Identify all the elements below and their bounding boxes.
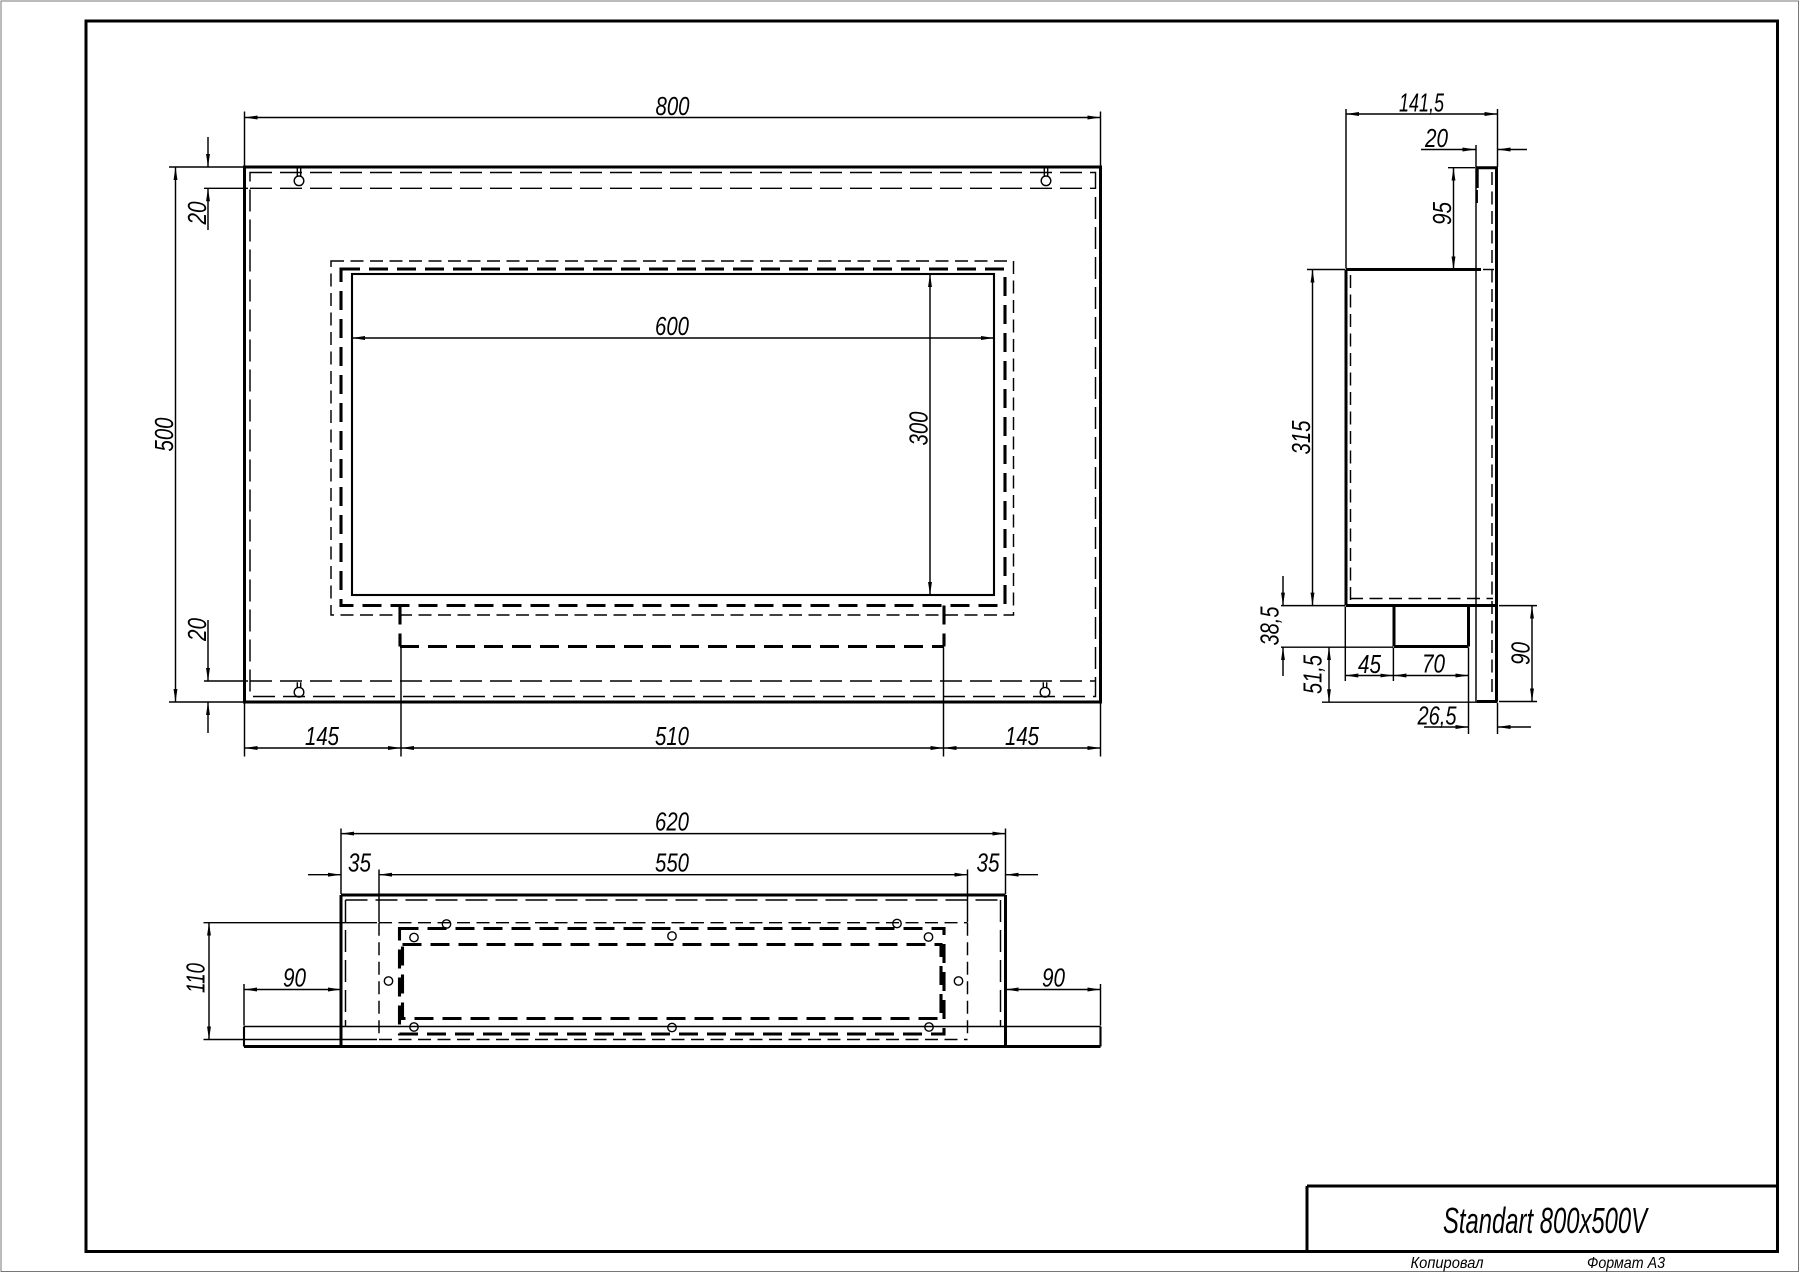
svg-text:35: 35: [348, 848, 371, 878]
svg-text:38,5: 38,5: [1255, 606, 1285, 645]
svg-text:26,5: 26,5: [1417, 701, 1457, 731]
svg-text:800: 800: [656, 91, 690, 121]
svg-text:20: 20: [182, 618, 212, 642]
svg-text:620: 620: [655, 807, 689, 837]
svg-text:90: 90: [1506, 642, 1536, 665]
svg-text:45: 45: [1358, 649, 1381, 679]
svg-text:510: 510: [655, 721, 689, 751]
svg-text:141,5: 141,5: [1399, 88, 1444, 118]
svg-text:Копировал: Копировал: [1411, 1255, 1484, 1272]
svg-text:20: 20: [1424, 123, 1448, 153]
svg-text:20: 20: [182, 201, 212, 225]
svg-text:500: 500: [149, 417, 179, 451]
svg-text:Формат А3: Формат А3: [1587, 1255, 1665, 1272]
svg-text:315: 315: [1286, 420, 1316, 454]
svg-text:110: 110: [181, 963, 211, 993]
svg-text:95: 95: [1427, 202, 1457, 225]
svg-text:Standart 800x500V: Standart 800x500V: [1443, 1200, 1649, 1241]
svg-text:35: 35: [977, 848, 1000, 878]
svg-text:90: 90: [1042, 963, 1065, 993]
svg-text:145: 145: [1005, 721, 1039, 751]
svg-text:550: 550: [655, 848, 689, 878]
svg-text:90: 90: [283, 963, 306, 993]
svg-text:600: 600: [655, 311, 689, 341]
svg-text:145: 145: [305, 721, 339, 751]
svg-text:300: 300: [904, 411, 934, 445]
svg-text:70: 70: [1422, 649, 1445, 679]
svg-text:51,5: 51,5: [1298, 655, 1328, 694]
